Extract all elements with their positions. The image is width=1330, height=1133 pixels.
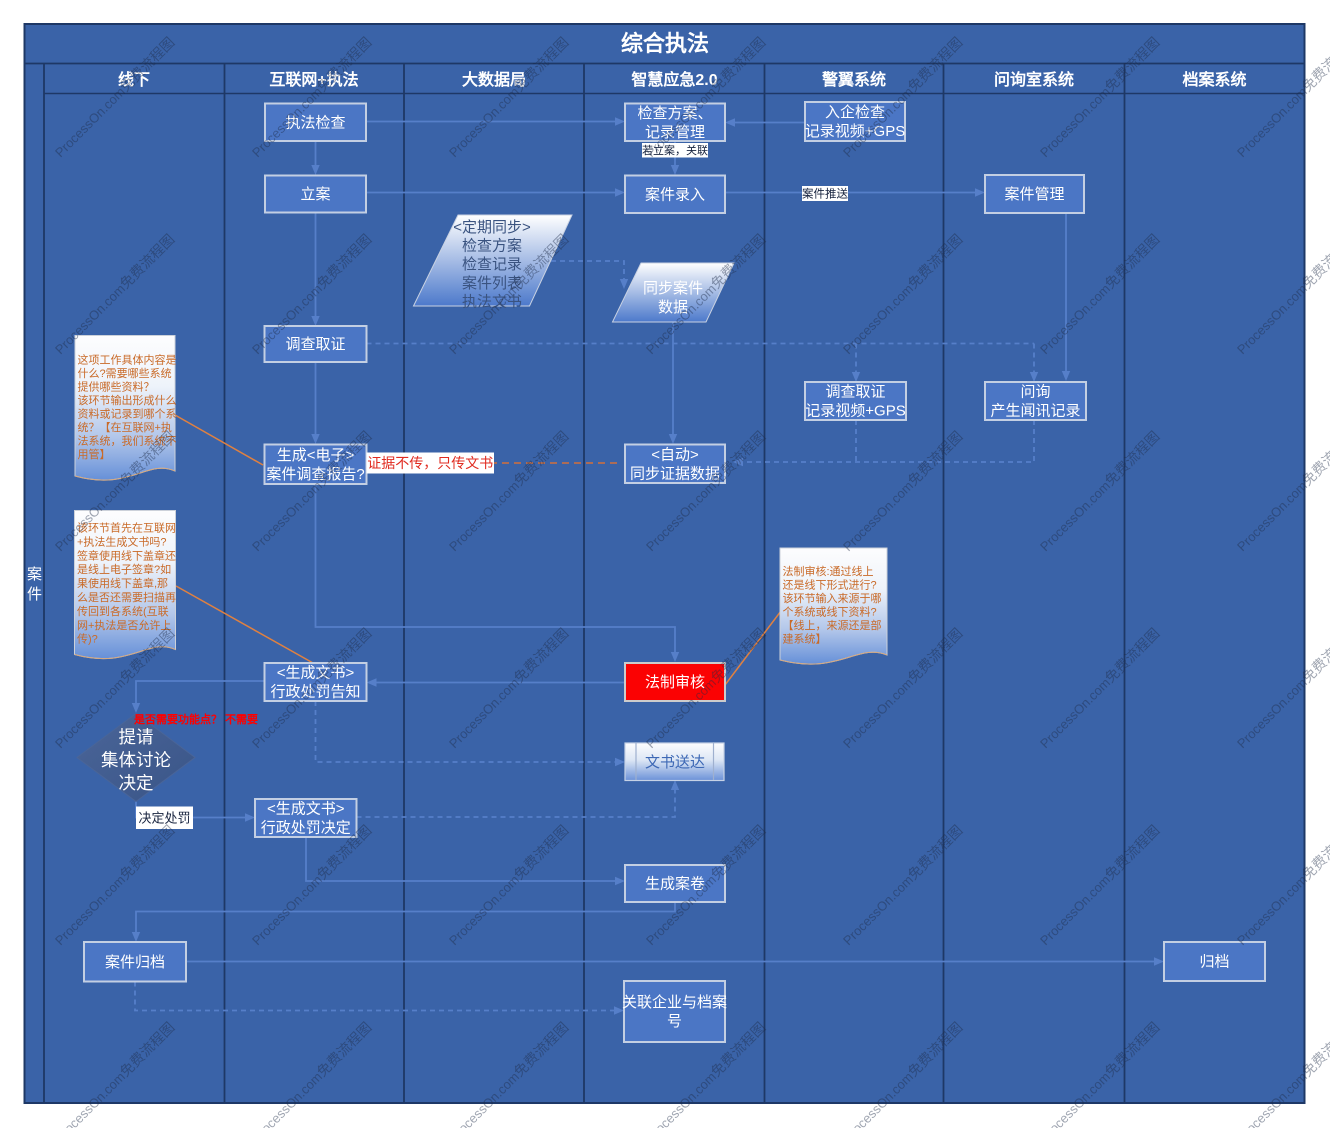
svg-text:提请: 提请: [119, 727, 154, 747]
svg-text:决定: 决定: [119, 773, 154, 793]
svg-text:该环节输出形成什么: 该环节输出形成什么: [78, 393, 177, 407]
svg-text:检查记录: 检查记录: [462, 256, 522, 273]
svg-text:<自动>: <自动>: [651, 446, 699, 463]
svg-text:提供哪些资料？: 提供哪些资料？: [78, 379, 155, 393]
svg-text:法制审核:通过线上: 法制审核:通过线上: [783, 564, 874, 578]
svg-text:问询室系统: 问询室系统: [994, 70, 1074, 89]
svg-text:件: 件: [27, 586, 42, 603]
svg-text:案件管理: 案件管理: [1004, 185, 1064, 203]
svg-text:证据不传，只传文书: 证据不传，只传文书: [367, 455, 493, 471]
svg-text:号: 号: [667, 1013, 682, 1030]
svg-text:调查取证: 调查取证: [285, 336, 345, 353]
svg-text:问询: 问询: [1020, 384, 1050, 401]
svg-text:传)?: 传)?: [77, 633, 98, 646]
svg-text:用管】: 用管】: [78, 447, 111, 461]
svg-text:是线上电子签章?如: 是线上电子签章?如: [77, 562, 171, 576]
svg-text:归档: 归档: [1199, 954, 1229, 971]
svg-text:产生闻讯记录: 产生闻讯记录: [990, 403, 1080, 420]
svg-text:调查取证: 调查取证: [825, 384, 885, 401]
svg-text:建系统】: 建系统】: [783, 632, 827, 646]
svg-text:立案: 立案: [300, 185, 330, 203]
svg-text:<生成文书>: <生成文书>: [267, 801, 345, 818]
svg-text:档案系统: 档案系统: [1182, 70, 1246, 89]
svg-text:案件录入: 案件录入: [645, 185, 705, 203]
svg-text:网+执法是否允许上: 网+执法是否允许上: [77, 618, 171, 632]
svg-text:集体讨论: 集体讨论: [101, 750, 171, 770]
svg-text:【线上，来源还是部: 【线上，来源还是部: [783, 618, 882, 632]
svg-text:记录视频+GPS: 记录视频+GPS: [805, 403, 905, 420]
svg-text:+执法生成文书吗?: +执法生成文书吗?: [77, 534, 167, 548]
svg-text:还是线下形式进行?: 还是线下形式进行?: [783, 578, 877, 592]
svg-text:果使用线下盖章,那: 果使用线下盖章,那: [77, 576, 168, 590]
svg-text:这项工作具体内容是: 这项工作具体内容是: [78, 352, 177, 366]
svg-text:什么?需要哪些系统: 什么?需要哪些系统: [78, 366, 172, 380]
svg-text:文书送达: 文书送达: [645, 754, 705, 771]
svg-text:是否需要功能点？ 不需要: 是否需要功能点？ 不需要: [133, 712, 258, 726]
svg-text:警翼系统: 警翼系统: [821, 70, 886, 89]
svg-text:案: 案: [27, 565, 42, 583]
svg-text:该环节输入来源于哪: 该环节输入来源于哪: [783, 591, 882, 605]
svg-text:个系统或线下资料?: 个系统或线下资料?: [783, 605, 877, 619]
svg-text:案件推送: 案件推送: [802, 187, 848, 201]
svg-text:行政处罚决定: 行政处罚决定: [261, 820, 351, 837]
svg-text:签章使用线下盖章还: 签章使用线下盖章还: [77, 548, 176, 562]
svg-text:统？【在互联网+执: 统？【在互联网+执: [78, 420, 172, 434]
svg-text:检查方案: 检查方案: [462, 237, 522, 255]
svg-text:资料或记录到哪个系: 资料或记录到哪个系: [78, 406, 177, 420]
svg-text:综合执法: 综合执法: [621, 31, 709, 56]
svg-text:案件归档: 案件归档: [105, 953, 165, 971]
svg-text:<定期同步>: <定期同步>: [453, 219, 531, 236]
svg-text:么是否还需要扫描再: 么是否还需要扫描再: [77, 590, 176, 604]
svg-text:关联企业与档案: 关联企业与档案: [622, 993, 727, 1011]
svg-text:传回到各系统(互联: 传回到各系统(互联: [77, 604, 169, 618]
svg-text:智慧应急2.0: 智慧应急2.0: [631, 70, 717, 89]
